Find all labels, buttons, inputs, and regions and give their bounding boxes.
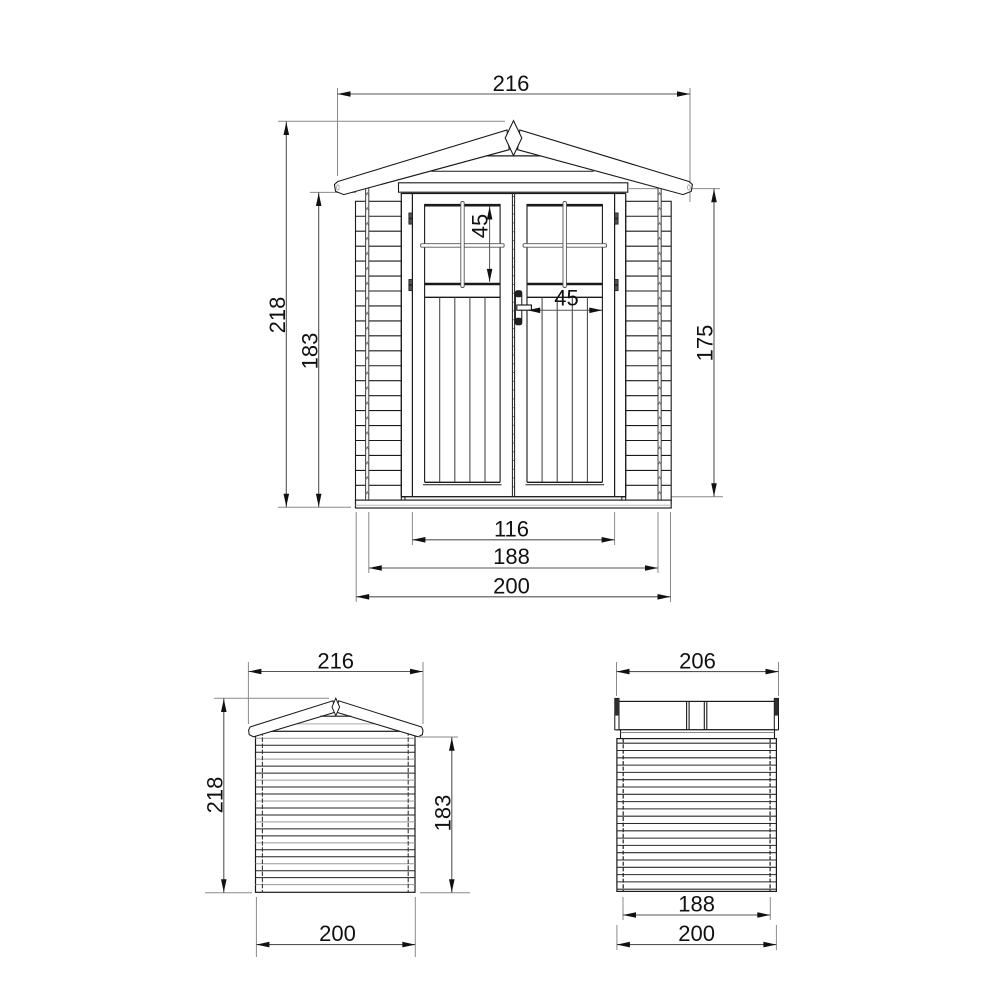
svg-text:218: 218	[203, 777, 228, 814]
svg-text:200: 200	[493, 573, 530, 598]
svg-text:216: 216	[493, 71, 530, 96]
svg-text:45: 45	[468, 214, 493, 238]
svg-text:216: 216	[317, 648, 354, 673]
svg-text:218: 218	[265, 297, 290, 334]
svg-text:188: 188	[493, 544, 530, 569]
svg-text:45: 45	[554, 286, 578, 311]
svg-text:188: 188	[678, 891, 715, 916]
svg-text:183: 183	[297, 333, 322, 370]
svg-text:183: 183	[431, 795, 456, 832]
svg-text:175: 175	[693, 325, 718, 362]
svg-text:200: 200	[319, 921, 356, 946]
svg-text:200: 200	[678, 921, 715, 946]
svg-text:206: 206	[679, 648, 716, 673]
svg-text:116: 116	[494, 517, 529, 542]
